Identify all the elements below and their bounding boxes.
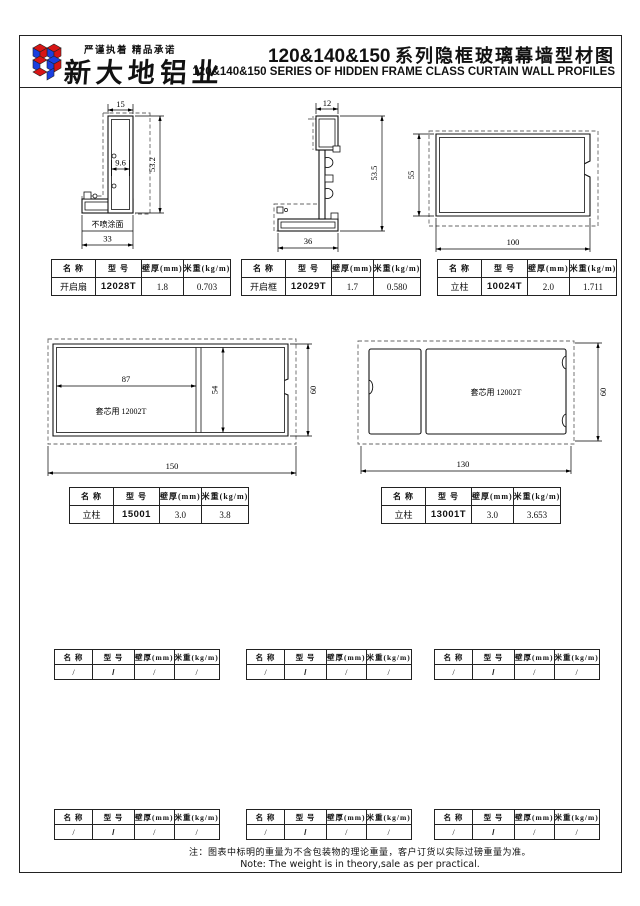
table-row: / / / / <box>247 825 412 840</box>
title-block: 严谨执着 精品承诺 新大地铝业 120&140&150 系列隐框玻璃幕墙型材图 … <box>20 36 621 88</box>
empty-weight: / <box>554 665 599 680</box>
col-header-thickness: 壁厚(mm) <box>472 488 514 506</box>
profile-model: 12029T <box>286 278 332 296</box>
sheet-frame: 严谨执着 精品承诺 新大地铝业 120&140&150 系列隐框玻璃幕墙型材图 … <box>19 35 622 873</box>
profile-weight: 1.711 <box>569 278 617 296</box>
spec-table-empty-1: 名 称 型 号 壁厚(mm) 米重(kg/m) / / / / <box>54 649 220 680</box>
table-row: 开启扇 12028T 1.8 0.703 <box>52 278 231 296</box>
dim-130: 130 <box>457 459 470 469</box>
col-header-weight: 米重(kg/m) <box>569 260 617 278</box>
dim-15: 15 <box>116 99 125 109</box>
dim-36: 36 <box>304 236 313 246</box>
empty-name: / <box>435 665 473 680</box>
col-header-name: 名 称 <box>435 810 473 825</box>
sheet-title: 120&140&150 系列隐框玻璃幕墙型材图 <box>268 42 615 68</box>
series-number: 120&140&150 <box>268 46 391 67</box>
profile-thickness: 2.0 <box>528 278 570 296</box>
col-header-name: 名 称 <box>52 260 96 278</box>
table-row: / / / / <box>435 825 600 840</box>
spec-table-empty-4: 名 称 型 号 壁厚(mm) 米重(kg/m) / / / / <box>54 809 220 840</box>
profile-weight: 3.8 <box>201 506 249 524</box>
spec-table-empty-2: 名 称 型 号 壁厚(mm) 米重(kg/m) / / / / <box>246 649 412 680</box>
col-header-model: 型 号 <box>285 650 327 665</box>
dim-53.5: 53.5 <box>369 166 379 181</box>
dim-87: 87 <box>122 374 131 384</box>
adjacent-profile-dashed-outline <box>274 116 319 231</box>
profile-outline <box>277 116 340 231</box>
profile-drawing-15001: 87 54 套芯用 12002T 60 150 <box>46 334 326 479</box>
col-header-thickness: 壁厚(mm) <box>135 810 175 825</box>
empty-model: / <box>473 665 515 680</box>
empty-thickness: / <box>135 665 175 680</box>
col-header-name: 名 称 <box>382 488 426 506</box>
col-header-weight: 米重(kg/m) <box>183 260 231 278</box>
dim-12: 12 <box>323 98 332 108</box>
col-header-name: 名 称 <box>435 650 473 665</box>
col-header-weight: 米重(kg/m) <box>201 488 249 506</box>
col-header-name: 名 称 <box>247 650 285 665</box>
col-header-thickness: 壁厚(mm) <box>142 260 184 278</box>
table-row: / / / / <box>55 825 220 840</box>
table-row: / / / / <box>435 665 600 680</box>
col-header-model: 型 号 <box>426 488 472 506</box>
profile-model: 10024T <box>482 278 528 296</box>
profile-model: 12028T <box>96 278 142 296</box>
profile-thickness: 3.0 <box>472 506 514 524</box>
core-sleeve-label: 套芯用 12002T <box>96 406 147 416</box>
col-header-model: 型 号 <box>285 810 327 825</box>
col-header-weight: 米重(kg/m) <box>174 810 219 825</box>
empty-model: / <box>473 825 515 840</box>
col-header-weight: 米重(kg/m) <box>174 650 219 665</box>
dim-150: 150 <box>166 461 179 471</box>
col-header-weight: 米重(kg/m) <box>513 488 561 506</box>
empty-name: / <box>435 825 473 840</box>
empty-model: / <box>93 825 135 840</box>
empty-weight: / <box>554 825 599 840</box>
col-header-weight: 米重(kg/m) <box>366 810 411 825</box>
profile-thickness: 3.0 <box>160 506 202 524</box>
dim-60: 60 <box>598 388 608 397</box>
col-header-name: 名 称 <box>242 260 286 278</box>
col-header-name: 名 称 <box>70 488 114 506</box>
col-header-name: 名 称 <box>55 810 93 825</box>
profile-thickness: 1.8 <box>142 278 184 296</box>
col-header-thickness: 壁厚(mm) <box>327 810 367 825</box>
empty-weight: / <box>174 665 219 680</box>
empty-thickness: / <box>515 825 555 840</box>
col-header-name: 名 称 <box>438 260 482 278</box>
dim-60: 60 <box>308 386 318 395</box>
profile-name: 立柱 <box>70 506 114 524</box>
spec-table-12028T: 名 称 型 号 壁厚(mm) 米重(kg/m) 开启扇 12028T 1.8 0… <box>51 259 231 296</box>
table-row: / / / / <box>55 665 220 680</box>
profile-drawing-12028T: 15 9.6 53.2 不喷涂面 33 <box>59 96 224 254</box>
profile-model: 13001T <box>426 506 472 524</box>
profile-weight: 0.703 <box>183 278 231 296</box>
spec-table-10024T: 名 称 型 号 壁厚(mm) 米重(kg/m) 立柱 10024T 2.0 1.… <box>437 259 617 296</box>
profile-name: 立柱 <box>382 506 426 524</box>
col-header-model: 型 号 <box>482 260 528 278</box>
profile-model: 15001 <box>114 506 160 524</box>
empty-model: / <box>93 665 135 680</box>
col-header-model: 型 号 <box>473 810 515 825</box>
empty-model: / <box>285 825 327 840</box>
col-header-model: 型 号 <box>93 810 135 825</box>
col-header-name: 名 称 <box>55 650 93 665</box>
dim-54: 54 <box>210 385 220 394</box>
col-header-thickness: 壁厚(mm) <box>528 260 570 278</box>
spec-table-15001: 名 称 型 号 壁厚(mm) 米重(kg/m) 立柱 15001 3.0 3.8 <box>69 487 249 524</box>
surface-label: 不喷涂面 <box>92 219 124 229</box>
weight-note-cn: 注：图表中标明的重量为不含包装物的理论重量，客户订货以实际过磅重量为准。 <box>140 845 580 858</box>
col-header-thickness: 壁厚(mm) <box>327 650 367 665</box>
col-header-name: 名 称 <box>247 810 285 825</box>
col-header-model: 型 号 <box>114 488 160 506</box>
profile-outline <box>53 344 288 436</box>
profile-drawing-12029T: 12 53.5 36 <box>233 96 388 256</box>
core-sleeve-label: 套芯用 12002T <box>471 387 522 397</box>
dim-55: 55 <box>406 171 416 180</box>
table-row: 立柱 10024T 2.0 1.711 <box>438 278 617 296</box>
empty-model: / <box>285 665 327 680</box>
dim-33: 33 <box>103 234 112 244</box>
sheet-title-en: 120&140&150 SERIES OF HIDDEN FRAME CLASS… <box>192 66 615 78</box>
dim-9.6: 9.6 <box>115 158 126 168</box>
col-header-model: 型 号 <box>286 260 332 278</box>
spec-table-empty-3: 名 称 型 号 壁厚(mm) 米重(kg/m) / / / / <box>434 649 600 680</box>
profile-drawing-10024T: 55 100 <box>403 104 623 254</box>
col-header-thickness: 壁厚(mm) <box>332 260 374 278</box>
profile-weight: 3.653 <box>513 506 561 524</box>
profile-name: 开启框 <box>242 278 286 296</box>
col-header-weight: 米重(kg/m) <box>366 650 411 665</box>
empty-thickness: / <box>327 665 367 680</box>
col-header-thickness: 壁厚(mm) <box>160 488 202 506</box>
empty-name: / <box>55 825 93 840</box>
profile-outline <box>369 349 566 434</box>
table-row: / / / / <box>247 665 412 680</box>
profile-thickness: 1.7 <box>332 278 374 296</box>
col-header-thickness: 壁厚(mm) <box>515 810 555 825</box>
profile-name: 立柱 <box>438 278 482 296</box>
weight-note-en: Note: The weight is in theory,sale as pe… <box>140 859 580 870</box>
empty-thickness: / <box>135 825 175 840</box>
spec-table-13001T: 名 称 型 号 壁厚(mm) 米重(kg/m) 立柱 13001T 3.0 3.… <box>381 487 561 524</box>
empty-thickness: / <box>515 665 555 680</box>
sheet-title-cn: 系列隐框玻璃幕墙型材图 <box>395 46 615 66</box>
dim-53.2: 53.2 <box>147 157 157 172</box>
col-header-weight: 米重(kg/m) <box>373 260 421 278</box>
empty-weight: / <box>366 825 411 840</box>
weight-note: 注：图表中标明的重量为不含包装物的理论重量，客户订货以实际过磅重量为准。 Not… <box>140 845 580 870</box>
col-header-thickness: 壁厚(mm) <box>135 650 175 665</box>
dim-100: 100 <box>507 237 520 247</box>
spec-table-empty-6: 名 称 型 号 壁厚(mm) 米重(kg/m) / / / / <box>434 809 600 840</box>
table-row: 开启框 12029T 1.7 0.580 <box>242 278 421 296</box>
dimension-height-55 <box>413 134 434 216</box>
profile-weight: 0.580 <box>373 278 421 296</box>
profile-drawing-13001T: 套芯用 12002T 60 130 <box>353 334 613 479</box>
table-row: 立柱 15001 3.0 3.8 <box>70 506 249 524</box>
table-row: 立柱 13001T 3.0 3.653 <box>382 506 561 524</box>
empty-thickness: / <box>327 825 367 840</box>
col-header-model: 型 号 <box>96 260 142 278</box>
spec-table-12029T: 名 称 型 号 壁厚(mm) 米重(kg/m) 开启框 12029T 1.7 0… <box>241 259 421 296</box>
spec-table-empty-5: 名 称 型 号 壁厚(mm) 米重(kg/m) / / / / <box>246 809 412 840</box>
col-header-weight: 米重(kg/m) <box>554 810 599 825</box>
col-header-model: 型 号 <box>93 650 135 665</box>
empty-weight: / <box>174 825 219 840</box>
col-header-weight: 米重(kg/m) <box>554 650 599 665</box>
profile-name: 开启扇 <box>52 278 96 296</box>
profile-outline <box>436 134 590 216</box>
col-header-thickness: 壁厚(mm) <box>515 650 555 665</box>
empty-name: / <box>247 825 285 840</box>
profile-sheet-page: 严谨执着 精品承诺 新大地铝业 120&140&150 系列隐框玻璃幕墙型材图 … <box>0 0 640 906</box>
col-header-model: 型 号 <box>473 650 515 665</box>
empty-name: / <box>247 665 285 680</box>
empty-name: / <box>55 665 93 680</box>
empty-weight: / <box>366 665 411 680</box>
